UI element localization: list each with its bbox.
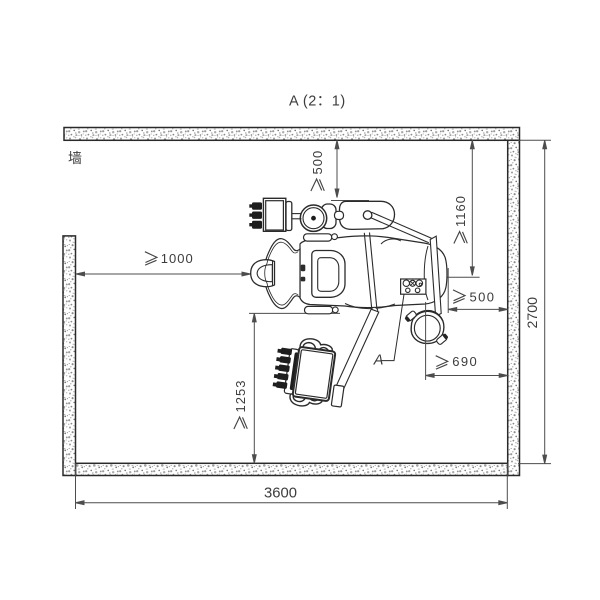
- svg-text:500: 500: [310, 150, 325, 175]
- svg-text:2700: 2700: [525, 297, 541, 329]
- svg-text:690: 690: [452, 354, 478, 369]
- svg-text:500: 500: [470, 289, 496, 304]
- svg-text:墙: 墙: [68, 150, 82, 166]
- svg-text:1000: 1000: [161, 251, 194, 266]
- svg-text:A (2：1): A (2：1): [289, 94, 346, 110]
- svg-text:1253: 1253: [233, 380, 248, 413]
- svg-text:3600: 3600: [264, 486, 297, 502]
- svg-text:A: A: [373, 353, 384, 369]
- svg-text:1160: 1160: [453, 195, 468, 227]
